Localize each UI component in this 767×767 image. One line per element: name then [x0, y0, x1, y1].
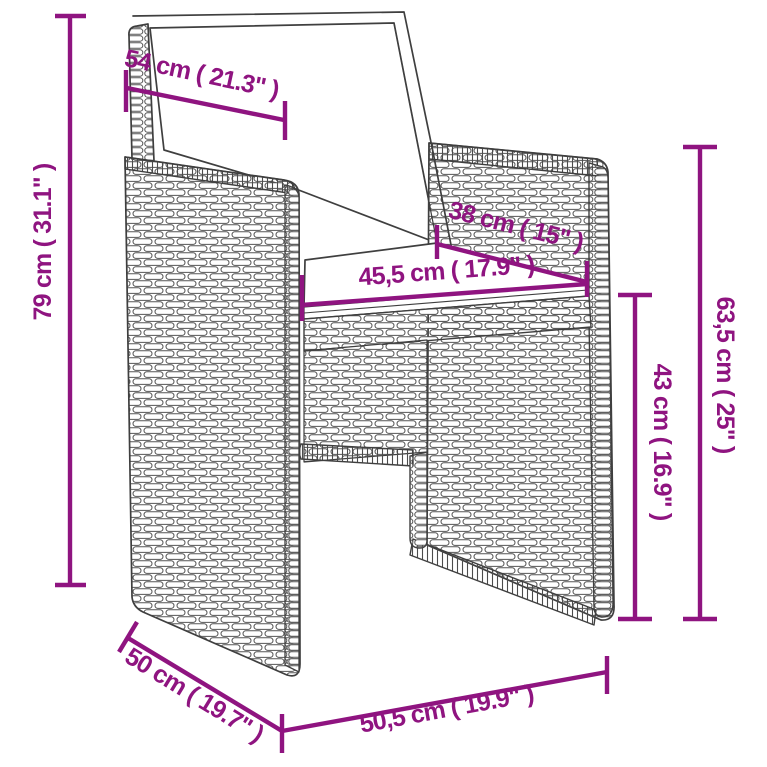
dimension-label-base-width: 50,5 cm ( 19.9" )	[357, 680, 536, 739]
armchair-drawing	[125, 12, 614, 676]
underseat-back-panel	[304, 340, 427, 462]
left-front-post	[285, 185, 299, 672]
dimension-label-seat-height: 43 cm ( 16.9" )	[648, 364, 676, 521]
rear-right-leg	[410, 452, 427, 548]
dimension-total-height	[55, 16, 86, 585]
product-dimension-diagram: 54 cm ( 21.3" ) 79 cm ( 31.1" ) 38 cm ( …	[0, 0, 767, 767]
left-arm-panel	[125, 157, 300, 676]
armchair-diagram-canvas: 54 cm ( 21.3" ) 79 cm ( 31.1" ) 38 cm ( …	[0, 0, 767, 767]
dimension-label-total-height: 79 cm ( 31.1" )	[29, 163, 57, 320]
dimension-seat-height	[618, 295, 652, 619]
dimension-label-side-height: 63,5 cm ( 25" )	[711, 297, 739, 454]
